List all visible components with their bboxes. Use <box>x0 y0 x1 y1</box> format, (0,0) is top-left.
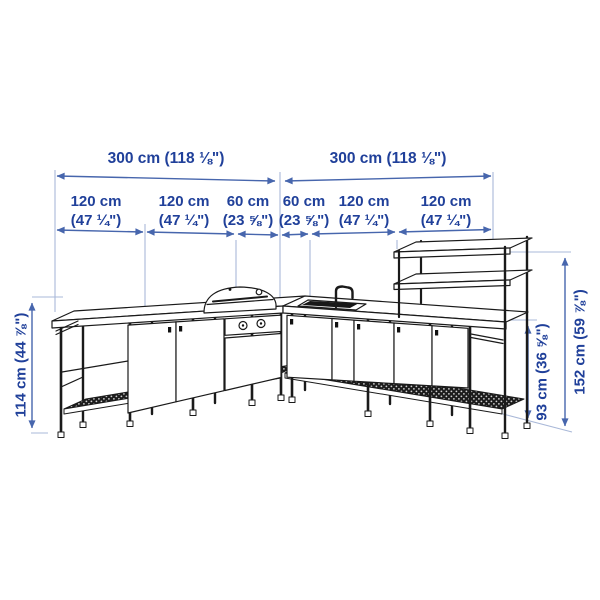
dim-height-right-counter-label: 93 cm (36 ⅝") <box>534 323 551 420</box>
dim-top-left-label: 300 cm (118 ⅛") <box>108 149 225 168</box>
dimension-diagram: 300 cm (118 ⅛") 300 cm (118 ⅛") 120 cm (… <box>0 0 600 600</box>
dim-segment-1-label: 120 cm (47 ¼") <box>71 192 122 230</box>
dim-segment-2-in: (47 ¼") <box>159 211 210 230</box>
dim-height-right-total-label: 152 cm (59 ⅞") <box>572 289 589 395</box>
cabinet-doors-right <box>287 315 468 388</box>
dim-segment-1-cm: 120 cm <box>71 192 122 211</box>
dim-top-right-label: 300 cm (118 ⅛") <box>330 149 447 168</box>
dim-segment-3-cm: 60 cm <box>223 192 273 211</box>
kitchen-drawing <box>52 237 532 439</box>
dim-segment-2-cm: 120 cm <box>159 192 210 211</box>
dim-segment-5-in: (47 ¼") <box>339 211 390 230</box>
rails-right-end <box>471 334 503 344</box>
dim-height-left-label: 114 cm (44 ⅞") <box>13 313 30 418</box>
dim-segment-6-label: 120 cm (47 ¼") <box>421 192 472 230</box>
dim-segment-4-label: 60 cm (23 ⅝") <box>279 192 329 230</box>
dim-segment-2-label: 120 cm (47 ¼") <box>159 192 210 230</box>
dim-segment-4-cm: 60 cm <box>279 192 329 211</box>
dim-segment-1-in: (47 ¼") <box>71 211 122 230</box>
open-module-left <box>61 361 128 387</box>
dim-segment-6-in: (47 ¼") <box>421 211 472 230</box>
dim-segment-6-cm: 120 cm <box>421 192 472 211</box>
grill-control-panel <box>225 315 281 335</box>
dim-segment-4-in: (23 ⅝") <box>279 211 329 230</box>
kitchen-illustration <box>0 0 600 600</box>
dim-segment-3-in: (23 ⅝") <box>223 211 273 230</box>
grill-dome <box>204 287 276 313</box>
dim-segment-3-label: 60 cm (23 ⅝") <box>223 192 273 230</box>
dim-segment-5-cm: 120 cm <box>339 192 390 211</box>
dim-segment-5-label: 120 cm (47 ¼") <box>339 192 390 230</box>
